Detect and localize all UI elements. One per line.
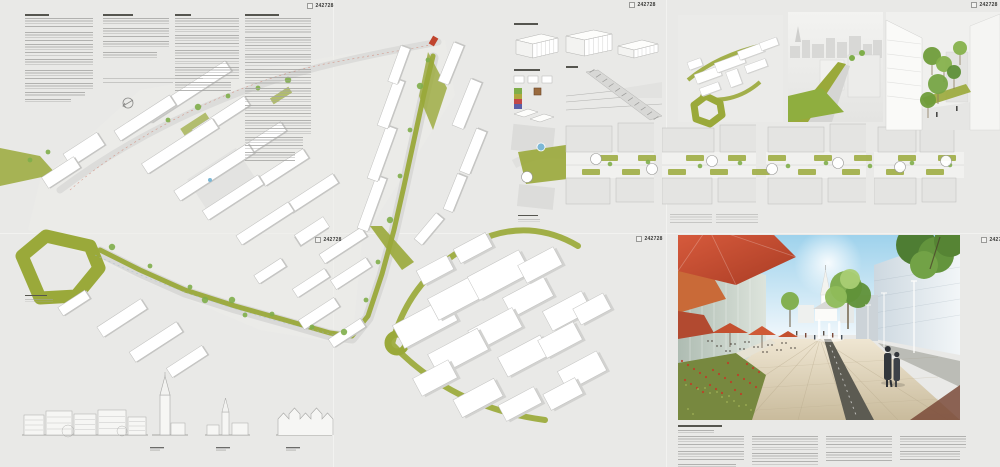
rendering-artwork (678, 235, 960, 420)
rail-junction-diagram (566, 69, 662, 120)
building-typology-diagrams (516, 30, 658, 58)
board-id-badge: 242728 (629, 2, 656, 8)
text-column-1 (25, 14, 93, 105)
massing-axonometric (370, 226, 615, 424)
board-id-box (636, 236, 642, 242)
board-id-box (971, 2, 977, 8)
materials-legend (514, 76, 554, 122)
board-id-box (315, 237, 321, 243)
competition-board-sheet: 242728 242728 242728 242728 242728 24272… (0, 0, 1000, 467)
board-id-label: 242728 (990, 238, 1000, 243)
typology-heading (514, 23, 540, 27)
aerial-axonometric-view (678, 15, 783, 124)
rail-heading (566, 66, 580, 70)
promenade-rendering (678, 235, 960, 420)
board-id-box (307, 3, 313, 9)
board-id-badge: 242728 (307, 3, 334, 9)
plan-scale-label (25, 295, 59, 305)
board-id-badge: 242728 (971, 2, 998, 8)
strip-legend-column-1 (670, 214, 712, 226)
plan-annotation (103, 78, 205, 87)
street-elevations (22, 372, 333, 451)
text-column-4 (245, 14, 311, 164)
materials-heading (514, 69, 542, 73)
board-id-label: 242728 (324, 238, 342, 243)
board-id-box (981, 237, 987, 243)
street-detail-plan (511, 122, 964, 214)
board-id-badge: 242728 (315, 237, 342, 243)
board-id-label: 242728 (980, 3, 998, 8)
corridor-perspective-view (788, 12, 883, 122)
board-id-badge: 242728 (636, 236, 663, 242)
board-id-badge: 242728 (981, 237, 1000, 243)
board-id-box (629, 2, 635, 8)
board-id-label: 242728 (316, 4, 334, 9)
strip-scale-label (518, 215, 544, 225)
text-column-2 (103, 14, 169, 61)
board-id-label: 242728 (645, 237, 663, 242)
rendering-caption (678, 425, 966, 467)
board-id-label: 242728 (638, 3, 656, 8)
street-perspective-view (886, 12, 1000, 130)
strip-legend-column-2 (716, 214, 758, 226)
